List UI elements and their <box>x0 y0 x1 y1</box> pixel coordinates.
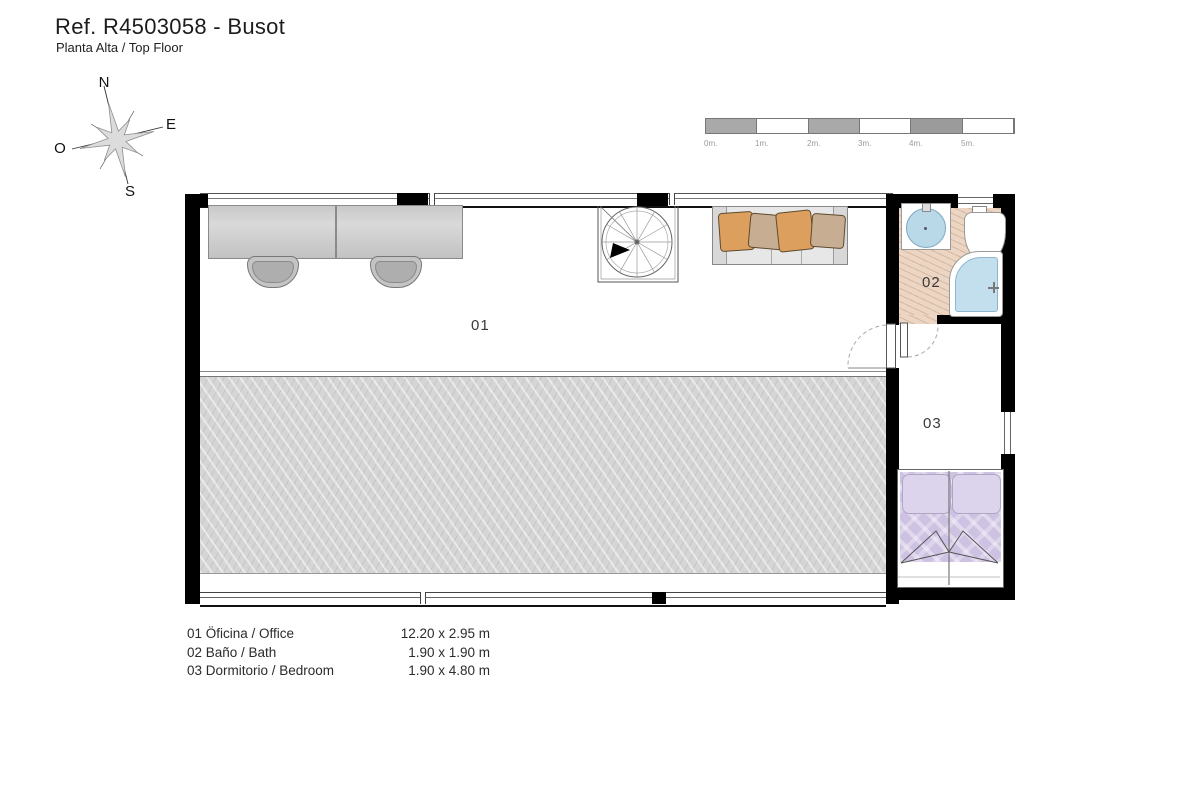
scale-segment <box>911 119 962 133</box>
desk <box>208 205 336 259</box>
office-chair <box>370 256 422 288</box>
scale-segment <box>809 119 860 133</box>
window <box>1001 412 1015 454</box>
scale-bar: 0m. 1m. 2m. 3m. 4m. 5m. <box>705 118 1015 134</box>
legend-row: 03 Dormitorio / Bedroom 1.90 x 4.80 m <box>187 662 490 681</box>
legend-room-name: 03 Dormitorio / Bedroom <box>187 662 375 681</box>
scale-label-0: 0m. <box>704 139 717 148</box>
sofa <box>712 206 848 265</box>
railing-post <box>420 592 426 604</box>
terrace-floor <box>200 376 886 574</box>
compass-label-west: O <box>50 140 70 157</box>
railing-post <box>652 592 666 604</box>
washbasin <box>901 203 951 250</box>
scale-label-4: 4m. <box>909 139 922 148</box>
scale-segment <box>706 119 757 133</box>
legend-row: 01 Öficina / Office 12.20 x 2.95 m <box>187 625 490 644</box>
scale-label-1: 1m. <box>755 139 768 148</box>
floor-plan-page: Ref. R4503058 - Busot Planta Alta / Top … <box>0 0 1200 800</box>
page-title: Ref. R4503058 - Busot <box>55 14 285 40</box>
scale-segment <box>860 119 911 133</box>
shower-faucet-icon <box>993 282 995 293</box>
legend-room-size: 1.90 x 4.80 m <box>375 662 490 681</box>
legend-room-name: 02 Baño / Bath <box>187 644 375 663</box>
legend-room-size: 12.20 x 2.95 m <box>375 625 490 644</box>
scale-label-5: 5m. <box>961 139 974 148</box>
compass-rose <box>48 68 188 203</box>
scale-segment <box>757 119 808 133</box>
desk <box>336 205 463 259</box>
window-mullion <box>429 193 435 205</box>
wall <box>886 194 899 325</box>
terrace-edge-line <box>200 371 886 372</box>
scale-segment <box>963 119 1014 133</box>
office-chair <box>247 256 299 288</box>
door-swing-bath <box>897 320 941 362</box>
room-label-office: 01 <box>471 317 490 334</box>
legend-room-size: 1.90 x 1.90 m <box>375 644 490 663</box>
sofa-pillow <box>775 209 815 253</box>
sofa-pillow <box>810 213 846 249</box>
scale-label-2: 2m. <box>807 139 820 148</box>
room-label-bedroom: 03 <box>923 415 942 432</box>
compass-star <box>80 103 154 177</box>
terrace-railing <box>200 592 886 607</box>
bed-fold-lines <box>896 469 1002 589</box>
wall <box>185 197 200 604</box>
page-subtitle: Planta Alta / Top Floor <box>56 40 183 55</box>
scale-label-3: 3m. <box>858 139 871 148</box>
room-label-bath: 02 <box>922 274 941 291</box>
legend-row: 02 Baño / Bath 1.90 x 1.90 m <box>187 644 490 663</box>
spiral-staircase <box>596 202 680 286</box>
door-swing-office <box>840 318 900 373</box>
legend: 01 Öficina / Office 12.20 x 2.95 m 02 Ba… <box>187 625 490 681</box>
compass-label-south: S <box>120 183 140 200</box>
compass-label-east: E <box>161 116 181 133</box>
compass-label-north: N <box>94 74 114 91</box>
legend-room-name: 01 Öficina / Office <box>187 625 375 644</box>
